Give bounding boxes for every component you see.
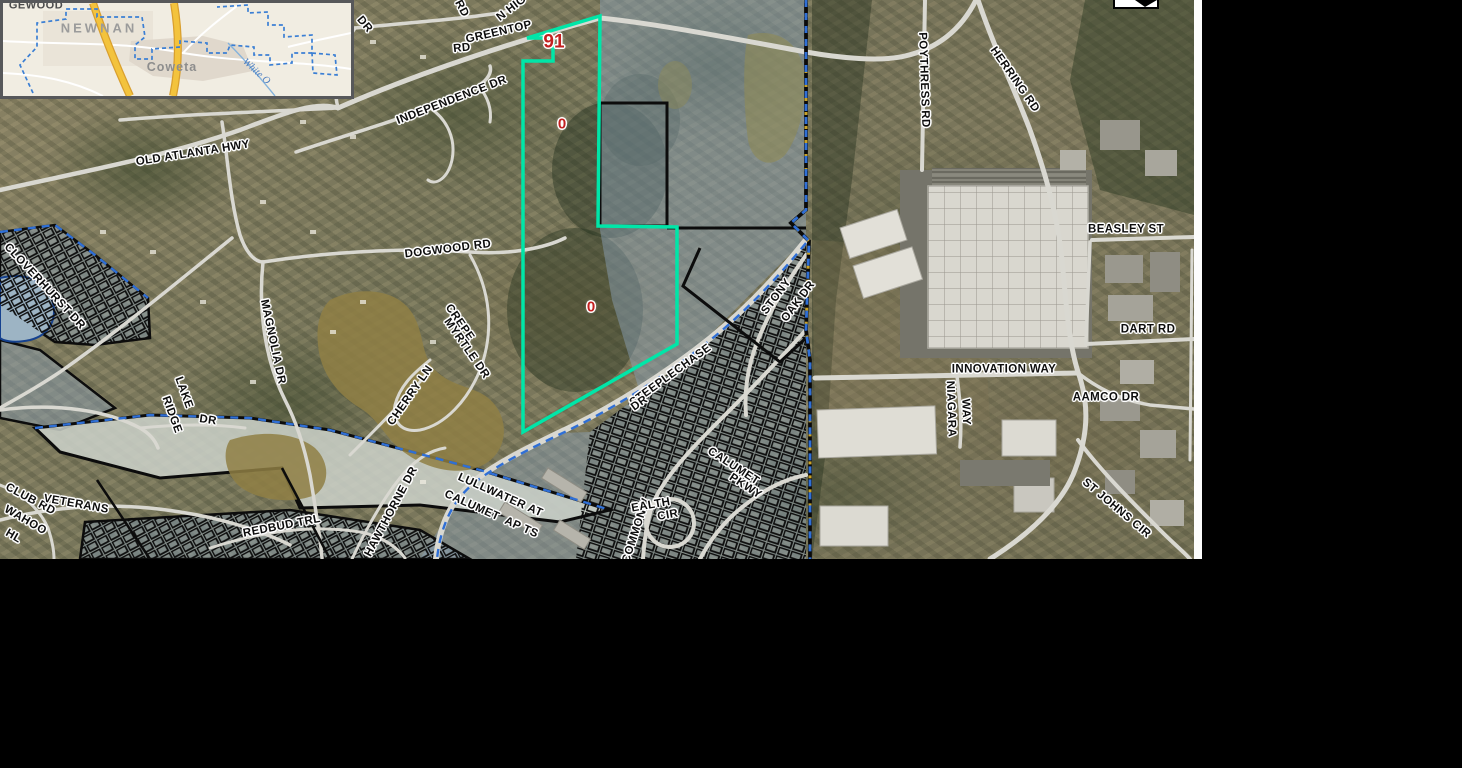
- north-arrow-icon: [1115, 0, 1157, 7]
- gis-map-viewport[interactable]: N HIGRDGREENTOPRDDRINDEPENDENCE DROLD AT…: [0, 0, 1194, 559]
- overview-inset-map[interactable]: NEWNANCowetaWhite OGEWOOD: [0, 0, 354, 99]
- inset-linework: [3, 3, 351, 96]
- cropped-north-arrow-widget[interactable]: [1113, 0, 1159, 9]
- screenshot-root: { "app": { "description": "County GIS pa…: [0, 0, 1462, 768]
- map-edge-strip: [1194, 0, 1202, 559]
